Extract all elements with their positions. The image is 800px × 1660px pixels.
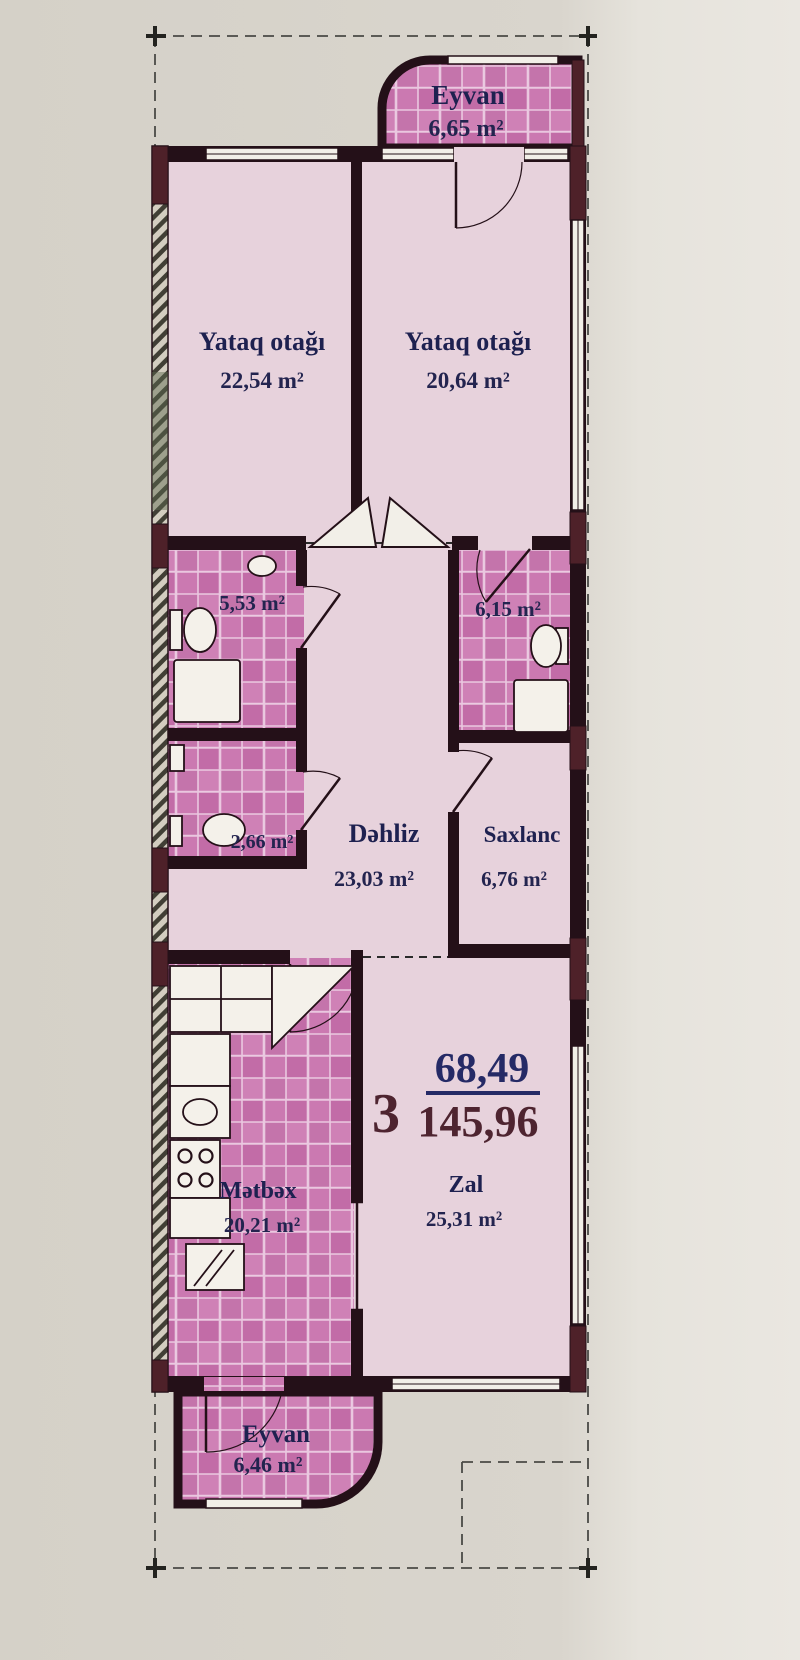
room-area-bath2: 6,15 m² — [475, 597, 541, 621]
room-area-eyvan-top: 6,65 m² — [428, 116, 503, 142]
summary-total-area: 145,96 — [418, 1097, 539, 1146]
room-label-eyvan-top: Eyvan — [431, 80, 505, 110]
bedroom-divider-wall — [351, 162, 362, 536]
balcony-bottom-floor — [178, 1392, 378, 1504]
kitchen-sink-icon — [183, 1099, 217, 1125]
room-area-bath1: 5,53 m² — [219, 591, 285, 615]
room-area-dehliz: 23,03 m² — [334, 866, 414, 891]
sink-wc — [170, 745, 184, 771]
room-area-wc: 2,66 m² — [231, 831, 294, 853]
toilet-icon — [531, 625, 561, 667]
floor-plan-canvas: Eyvan 6,65 m² Yataq otağı 22,54 m² Yataq… — [0, 0, 800, 1660]
window-balcony-bottom — [206, 1499, 302, 1508]
room-area-zal: 25,31 m² — [426, 1207, 502, 1231]
sink-icon — [248, 556, 276, 576]
stove-icon — [170, 1140, 220, 1198]
room-label-yataq2: Yataq otağı — [405, 327, 531, 356]
window-balcony-top — [448, 56, 558, 64]
shower-tray-bath2 — [514, 680, 568, 732]
room-area-saxlanc: 6,76 m² — [481, 867, 547, 891]
summary-living-area: 68,49 — [435, 1046, 530, 1092]
kitchen-cabinet — [170, 1034, 230, 1086]
kitchen-cabinet — [170, 1198, 230, 1238]
shower-tray-bath1 — [174, 660, 240, 722]
toilet-tank-bath1 — [170, 610, 182, 650]
radiator-icon — [186, 1244, 244, 1290]
room-area-metbex: 20,21 m² — [224, 1213, 300, 1237]
room-area-eyvan-bottom: 6,46 m² — [234, 1452, 303, 1477]
room-label-yataq1: Yataq otağı — [199, 327, 325, 356]
toilet-tank-wc — [170, 816, 182, 846]
room-label-dehliz: Dəhliz — [349, 819, 420, 848]
left-wall — [152, 146, 168, 1392]
left-wall-tint — [152, 372, 168, 510]
room-label-eyvan-bottom: Eyvan — [242, 1421, 310, 1448]
room-label-saxlanc: Saxlanc — [484, 822, 561, 847]
summary-room-count: 3 — [372, 1083, 400, 1145]
kitchen-zal-divider-upper — [351, 950, 363, 1202]
floor-plan-page: Eyvan 6,65 m² Yataq otağı 22,54 m² Yataq… — [0, 0, 800, 1660]
room-area-yataq1: 22,54 m² — [220, 368, 304, 393]
kitchen-zal-divider-lower — [351, 1310, 363, 1392]
toilet-icon — [184, 608, 216, 652]
room-area-yataq2: 20,64 m² — [426, 368, 510, 393]
room-label-metbex: Mətbəx — [219, 1178, 296, 1204]
room-label-zal: Zal — [449, 1172, 484, 1198]
